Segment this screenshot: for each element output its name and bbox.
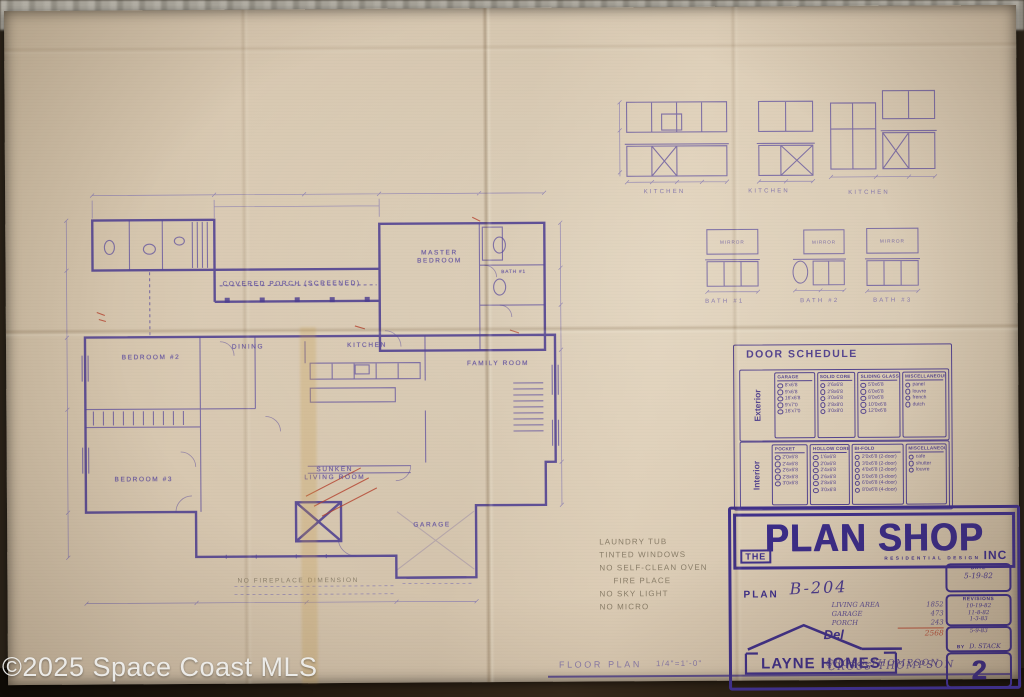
column-sliding-glass: SLIDING GLASS 5'0x6'86'0x6'88'0x6'810'0x… [858, 372, 901, 438]
door-size-entry: louvre [908, 467, 943, 474]
door-size-entry: 16'x7'0 [778, 409, 813, 416]
room-label-family: FAMILY ROOM [448, 360, 548, 368]
interior-row-label: Interior [742, 443, 772, 506]
door-schedule-title: DOOR SCHEDULE [746, 348, 858, 361]
door-size-entry: 3'0x8'0 [820, 408, 853, 415]
area-row: LIVING AREA1852 [832, 600, 944, 610]
date-box: DATE 5-19-82 [945, 563, 1011, 592]
door-size-entry: 12'0x6'8 [861, 408, 897, 415]
room-label-master-2: BEDROOM [401, 257, 477, 264]
revisions-box: REVISIONS 10-19-8211-8-821-3-83 [946, 594, 1012, 626]
bath-elevation-2: MIRROR [787, 223, 851, 297]
column-ext-miscellaneous: MISCELLANEOUS panellouvrefrenchdutch [902, 371, 947, 437]
column-solid-core: SOLID CORE 2'6x6'82'8x6'83'0x6'82'8x8'03… [817, 372, 856, 438]
kitchen-elevation-label-3: KITCHEN [814, 189, 924, 196]
bath-elevation-3: MIRROR [857, 222, 927, 296]
pencil-note: TINTED WINDOWS [599, 548, 749, 562]
floor-plan-linework [54, 165, 572, 623]
pencil-note: NO SKY LIGHT [599, 587, 749, 601]
column-bi-fold: BI-FOLD 2'0x6'8 (2-door)3'0x6'8 (2-door)… [851, 444, 903, 505]
blueprint-sheet: COVERED PORCH (SCREENED) MASTER BEDROOM … [4, 5, 1020, 685]
mls-watermark: ©2025 Space Coast MLS [2, 652, 318, 683]
door-schedule-exterior: Exterior GARAGE 8'x6'89'x6'816'x6'89'x7'… [739, 368, 949, 441]
plan-shop-logo: PLAN SHOP THE RESIDENTIAL DESIGN INC [733, 512, 1015, 570]
svg-text:MIRROR: MIRROR [812, 240, 836, 245]
room-label-living-2: LIVING ROOM [295, 474, 375, 481]
plan-label: PLAN [743, 589, 778, 600]
room-label-living-1: SUNKEN [295, 466, 375, 473]
brand-tagline: RESIDENTIAL DESIGN [884, 555, 980, 561]
room-label-garage: GARAGE [402, 521, 462, 528]
room-label-bath1: BATH #1 [494, 270, 534, 275]
bath-elevation-label-3: BATH #3 [838, 297, 948, 304]
door-size-entry: 3'0x6'8 [813, 487, 847, 494]
pencil-note: LAUNDRY TUB [599, 535, 749, 549]
kitchen-elevation-label-1: KITCHEN [601, 189, 728, 196]
footer-client-name: CROSS-THOMPSON [826, 658, 940, 669]
door-size-entry: 8'0x6'8 (4-door) [855, 487, 901, 494]
pencil-note: FIRE PLACE [599, 574, 749, 588]
column-pocket: POCKET 2'0x6'82'4x6'82'6x6'82'8x6'83'0x6… [772, 444, 808, 505]
fold-crease-horizontal-top [4, 41, 1016, 56]
column-garage: GARAGE 8'x6'89'x6'816'x6'89'x7'016'x7'0 [774, 372, 815, 438]
brand-the: THE [740, 549, 771, 563]
door-schedule-interior: Interior POCKET 2'0x6'82'4x6'82'6x6'82'8… [740, 440, 950, 508]
pencil-notes: LAUNDRY TUBTINTED WINDOWSNO SELF-CLEAN O… [599, 535, 749, 614]
column-int-miscellaneous: MISCELLANEOUS cafeshutterlouvre [905, 443, 947, 504]
pencil-note: NO SELF-CLEAN OVEN [599, 561, 749, 575]
room-label-kitchen: KITCHEN [332, 342, 402, 349]
svg-text:MIRROR: MIRROR [720, 240, 745, 245]
door-size-entry: 3'0x6'8 [775, 481, 805, 488]
door-size-entry: dutch [905, 401, 943, 408]
svg-text:Del: Del [824, 627, 845, 642]
photo-scene: COVERED PORCH (SCREENED) MASTER BEDROOM … [0, 0, 1024, 697]
revision-date: 1-3-83 [948, 616, 1010, 623]
sheet-number-box: 2 [946, 652, 1012, 688]
bath-elevation-label-1: BATH #1 [670, 298, 780, 305]
room-label-master-1: MASTER [401, 249, 477, 256]
column-hollow-core: HOLLOW CORE 1'6x6'82'0x6'82'4x6'82'6x6'8… [810, 444, 850, 505]
room-label-dining: DINING [218, 343, 278, 350]
note-no-fireplace-dimension: NO FIREPLACE DIMENSION [237, 577, 347, 585]
drawing-scale: 1/4"=1'-0" [656, 659, 703, 668]
by-box: 5-9-83 BY D. STACK [946, 626, 1012, 652]
pencil-note: NO MICRO [600, 600, 750, 614]
kitchen-elevation-label-2: KITCHEN [714, 188, 824, 195]
brand-inc: INC [984, 548, 1008, 562]
sheet-number: 2 [948, 654, 1010, 686]
svg-text:MIRROR: MIRROR [880, 239, 905, 245]
room-label-bedroom2: BEDROOM #2 [106, 354, 196, 362]
kitchen-elevation-3 [826, 82, 939, 184]
bath-elevation-1: MIRROR [699, 223, 765, 297]
exterior-row-label: Exterior [741, 371, 774, 439]
drawing-title: FLOOR PLAN [559, 659, 642, 670]
kitchen-elevation-1 [616, 92, 744, 188]
plan-number: B-204 [789, 577, 848, 598]
room-label-porch: COVERED PORCH (SCREENED) [212, 280, 372, 288]
kitchen-elevation-2 [750, 93, 821, 186]
door-schedule: DOOR SCHEDULE Exterior GARAGE 8'x6'89'x6… [733, 343, 953, 510]
room-label-bedroom3: BEDROOM #3 [99, 476, 189, 484]
